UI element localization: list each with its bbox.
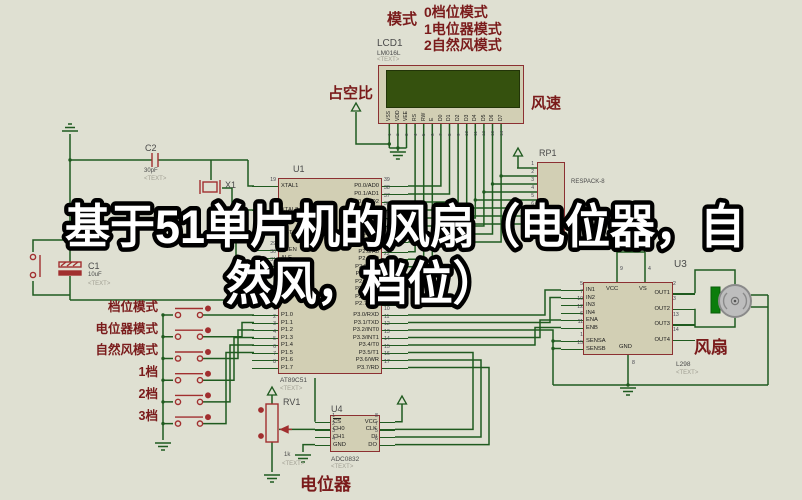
pin-number: 8	[447, 125, 452, 136]
pin: 14P3.4/T0	[278, 341, 382, 349]
pin-number: 5	[561, 281, 583, 287]
pin-number: 12	[384, 321, 406, 327]
pin-label: P0.1/AD1	[354, 191, 382, 197]
pin: 38P0.1/AD1	[278, 190, 382, 198]
lcd-part: LM016L	[377, 50, 401, 57]
pin-number: 1	[254, 306, 276, 312]
pin-label: P2.4/A12	[355, 279, 382, 285]
ground-icon	[390, 152, 406, 159]
pin-label: P3.7/RD	[357, 365, 382, 371]
button-speed2-icon[interactable]	[175, 393, 210, 404]
pin-label: P3.3/INT1	[353, 335, 382, 341]
x1-ref: X1	[225, 180, 236, 190]
pin: 27P2.6/A14	[278, 293, 382, 301]
button-label: 3档	[40, 406, 158, 428]
pin-number: 14	[673, 327, 695, 333]
pin-label: D0	[438, 100, 444, 121]
pin-label: D4	[472, 100, 478, 121]
c2-ref: C2	[145, 143, 157, 153]
pin: 36P0.3/AD3	[278, 206, 382, 214]
lcd-pin: VSS 1	[385, 100, 394, 136]
pin-label: P3.0/RXD	[353, 312, 382, 318]
capacitor-c2-icon[interactable]	[152, 153, 158, 167]
pin: 39P0.0/AD0	[278, 182, 382, 190]
pin: 16P3.6/WR	[278, 356, 382, 364]
pin-label: P3.4/T0	[359, 342, 382, 348]
u1-part: AT89C51	[280, 377, 307, 384]
pin: 22P2.1/A9	[278, 256, 382, 264]
mode-legend-list: 0档位模式1电位器模式2自然风模式	[424, 4, 502, 54]
button-label: 1档	[40, 362, 158, 384]
pin-stub	[561, 328, 583, 329]
pin-number: 8	[531, 217, 534, 223]
pin-number: 23	[384, 258, 406, 264]
pin-stub	[252, 233, 278, 234]
pin-label: OUT3	[655, 321, 673, 327]
wires-left	[33, 134, 254, 300]
u1-ref: U1	[293, 164, 305, 174]
pin-number: 33	[384, 225, 406, 231]
pin: 33P0.6/AD6	[278, 230, 382, 238]
pin-number: 3	[673, 296, 695, 302]
button-speed1-icon[interactable]	[175, 371, 210, 382]
pin-number: 29	[254, 241, 276, 247]
pin-number: 4	[413, 125, 418, 136]
lcd-pin: RW 5	[419, 100, 428, 136]
pin: 26P2.5/A13	[278, 286, 382, 294]
pin-label: RW	[421, 100, 427, 121]
pin-number: 34	[384, 217, 406, 223]
u4-placeholder: <TEXT>	[331, 464, 353, 470]
pin-label: P2.1/A9	[358, 256, 382, 262]
pin: 10P3.0/RXD	[278, 311, 382, 319]
pin-label: D2	[455, 100, 461, 121]
pin-number: 36	[384, 201, 406, 207]
pin-label: D5	[481, 100, 487, 121]
u1-p2-pins: 21P2.0/A822P2.1/A923P2.2/A1024P2.3/A1125…	[278, 248, 382, 308]
button-mode-gear-icon[interactable]	[175, 306, 210, 317]
pin: 5DI	[330, 433, 380, 441]
lcd-pin: RS 4	[411, 100, 420, 136]
ground-icon	[620, 388, 636, 395]
pin-number: 7	[561, 289, 583, 295]
pin-number: 4	[648, 266, 651, 272]
u2-gnd-label: GND	[619, 344, 632, 350]
pin-number: 6	[430, 125, 435, 136]
pin-number: 2	[531, 169, 534, 175]
rp1-ref: RP1	[539, 148, 557, 158]
pin-number: 2	[395, 125, 400, 136]
pin-number: 6	[531, 201, 534, 207]
u3-ref: U3	[674, 259, 687, 270]
wind-speed-label: 风速	[531, 92, 561, 113]
rv1-value: 1k	[284, 452, 290, 458]
lcd-pin: D2 9	[454, 100, 463, 136]
pin-number: 5	[421, 125, 426, 136]
pin-number: 3	[404, 125, 409, 136]
pin: 28P2.7/A15	[278, 301, 382, 309]
pin: 23P2.2/A10	[278, 263, 382, 271]
pin-label: P3.2/INT0	[353, 327, 382, 333]
pin-number: 12	[561, 304, 583, 310]
pin-label: P0.0/AD0	[354, 183, 382, 189]
motor-fan-icon[interactable]	[711, 285, 751, 317]
pin-stub	[673, 309, 695, 310]
pin-number: 14	[384, 336, 406, 342]
button-label: 电位器模式	[40, 319, 158, 341]
pin-label: D3	[464, 100, 470, 121]
pin-number: 5	[254, 336, 276, 342]
schematic-canvas: VSS 1 VDD 2 VEE 3 RS 4 RW 5 E 6 D0 7 D1 …	[0, 0, 802, 500]
pin-number: 8	[632, 360, 635, 366]
pin-label: VSS	[386, 100, 392, 121]
pin-label: P2.7/A15	[355, 301, 382, 307]
pin-number: 27	[384, 288, 406, 294]
pin: 35P0.4/AD4	[278, 214, 382, 222]
pin-number: 4	[254, 329, 276, 335]
pin-number: 2	[254, 314, 276, 320]
pin-stub	[252, 368, 278, 369]
u2-part: L298	[676, 361, 690, 368]
pin-label: P2.6/A14	[355, 294, 382, 300]
pin-number: 11	[384, 314, 406, 320]
u2-placeholder: <TEXT>	[676, 370, 698, 376]
pin-label: P0.5/AD5	[354, 223, 382, 229]
pin-number: 10	[464, 125, 469, 136]
pin-number: 8	[254, 359, 276, 365]
pin-stub	[673, 293, 695, 294]
pin-number: 9	[254, 224, 276, 230]
u2-out-pins: 2OUT13OUT213OUT314OUT4	[583, 286, 673, 348]
pin: 11P3.1/TXD	[278, 319, 382, 327]
lcd-pin: D6 13	[488, 100, 497, 136]
mode-legend-item: 1电位器模式	[424, 21, 502, 38]
potentiometer-rv1-icon[interactable]	[259, 404, 292, 442]
pin-number: 25	[384, 273, 406, 279]
lcd-pin: VDD 2	[394, 100, 403, 136]
u1-p3-pins: 10P3.0/RXD11P3.1/TXD12P3.2/INT013P3.3/IN…	[278, 311, 382, 371]
pin-label: OUT1	[655, 290, 673, 296]
pin: 17P3.7/RD	[278, 364, 382, 372]
pin-stub	[561, 349, 583, 350]
pin-stub	[673, 340, 695, 341]
pin-number: 1	[531, 161, 534, 167]
pin-number: 6	[375, 436, 397, 442]
lcd-pin-list: VSS 1 VDD 2 VEE 3 RS 4 RW 5 E 6 D0 7 D1 …	[385, 100, 505, 136]
pin-number: 2	[673, 281, 695, 287]
ground-icon	[62, 124, 78, 131]
pin-number: 8	[375, 413, 397, 419]
pin: 13P3.3/INT1	[278, 334, 382, 342]
pin-number: 35	[384, 209, 406, 215]
pin-stub	[315, 445, 330, 446]
mode-legend-item: 2自然风模式	[424, 37, 502, 54]
pin: 7CLK	[330, 426, 380, 434]
pin-label: P0.4/AD4	[354, 215, 382, 221]
capacitor-c1-icon[interactable]	[59, 262, 81, 275]
mode-legend-item: 0档位模式	[424, 4, 502, 21]
pin-number: 31	[254, 257, 276, 263]
pin-number: 6	[254, 344, 276, 350]
pin-number: 16	[384, 351, 406, 357]
pin-number: 10	[384, 306, 406, 312]
pin-number: 21	[384, 243, 406, 249]
pin: 6DO	[330, 441, 380, 449]
pin-number: 3	[254, 321, 276, 327]
pin-number: 5	[531, 193, 534, 199]
pin-label: D1	[446, 100, 452, 121]
fan-label: 风扇	[694, 333, 728, 358]
pin-label: OUT2	[655, 306, 673, 312]
u4-part: ADC0832	[331, 456, 359, 463]
power-arrow-icon	[514, 148, 523, 156]
pin-number: 4	[531, 185, 534, 191]
pin-number: 12	[481, 125, 486, 136]
lcd-placeholder: <TEXT>	[377, 57, 399, 63]
mode-legend-heading: 模式	[387, 8, 417, 29]
pin-number: 17	[384, 359, 406, 365]
lcd-ref: LCD1	[377, 38, 403, 49]
pin-label: P3.6/WR	[356, 357, 382, 363]
c2-placeholder: <TEXT>	[144, 176, 166, 182]
c1-ref: C1	[88, 261, 100, 271]
pin-label: P2.0/A8	[358, 249, 382, 255]
wires-buttons	[163, 315, 254, 440]
button-label: 自然风模式	[40, 340, 158, 362]
pin-label: P2.3/A11	[356, 271, 382, 277]
u2-vcc-label: VCC	[606, 286, 618, 292]
pin-label: VEE	[403, 100, 409, 121]
power-arrow-icon	[352, 103, 361, 111]
pin-label: P3.5/T1	[359, 350, 382, 356]
button-label-list: 档位模式电位器模式自然风模式1档2档3档	[40, 297, 158, 427]
pin: 13OUT3	[583, 317, 673, 333]
pin-number: 22	[384, 251, 406, 257]
pin: 2OUT1	[583, 286, 673, 302]
c2-value: 30pF	[144, 168, 158, 174]
button-mode-pot-icon[interactable]	[175, 328, 210, 339]
pin-label: D7	[498, 100, 504, 121]
pin: 8	[518, 219, 534, 227]
pin-label: VDD	[395, 100, 401, 121]
pin-stub	[252, 266, 278, 267]
pin: 24P2.3/A11	[278, 271, 382, 279]
pin-number: 11	[473, 125, 478, 136]
u4-ref: U4	[331, 404, 343, 414]
pin-number: 7	[531, 209, 534, 215]
lcd-pin: D1 8	[445, 100, 454, 136]
rv1-placeholder: <TEXT>	[282, 461, 304, 467]
pin-stub	[382, 368, 408, 369]
pin: 32P0.7/AD7	[278, 238, 382, 246]
pin-number: 10	[561, 296, 583, 302]
c1-value: 10uF	[88, 272, 102, 278]
pin-stub	[252, 186, 278, 187]
ground-icon	[155, 443, 171, 450]
pin: 3OUT2	[583, 301, 673, 317]
pin-number: 1	[387, 125, 392, 136]
pin: 12P3.2/INT0	[278, 326, 382, 334]
button-label: 档位模式	[40, 297, 158, 319]
pin: 15P3.5/T1	[278, 349, 382, 357]
button-mode-natural-icon[interactable]	[175, 350, 210, 361]
lcd-pin: VEE 3	[402, 100, 411, 136]
lcd-pin: D0 7	[437, 100, 446, 136]
pin-number: 3	[531, 177, 534, 183]
potentiometer-label: 电位器	[300, 470, 351, 495]
u1-p0-pins: 39P0.0/AD038P0.1/AD137P0.2/AD236P0.3/AD3…	[278, 182, 382, 246]
pin-number: 39	[384, 177, 406, 183]
pin-number: 19	[254, 177, 276, 183]
pin-label: P0.2/AD2	[354, 199, 382, 205]
pin-number: 7	[254, 351, 276, 357]
lcd-pin: D4 11	[471, 100, 480, 136]
rv1-ref: RV1	[283, 397, 300, 407]
pin-number: 7	[438, 125, 443, 136]
pin-label: P0.7/AD7	[354, 239, 382, 245]
pin-number: 13	[384, 329, 406, 335]
lcd-pin: E 6	[428, 100, 437, 136]
u2-vs-label: VS	[639, 286, 647, 292]
ground-icon	[264, 475, 280, 482]
u1-placeholder: <TEXT>	[280, 386, 302, 392]
button-label: 2档	[40, 384, 158, 406]
crystal-x1-icon[interactable]	[200, 180, 220, 194]
pin-label: D6	[489, 100, 495, 121]
pin-number: 15	[561, 340, 583, 346]
pin: 25P2.4/A12	[278, 278, 382, 286]
pin-number: 18	[254, 201, 276, 207]
pin-number: 9	[620, 266, 623, 272]
pin-number: 24	[384, 266, 406, 272]
pin-label: RS	[412, 100, 418, 121]
pin-number: 38	[384, 185, 406, 191]
pin-number: 13	[673, 312, 695, 318]
power-arrow-icon	[268, 387, 277, 395]
lcd-pin: D3 10	[462, 100, 471, 136]
lcd-pin: D5 12	[480, 100, 489, 136]
pin-label: E	[429, 100, 435, 121]
pin: 21P2.0/A8	[278, 248, 382, 256]
pin-number: 28	[384, 296, 406, 302]
pin-stub	[252, 210, 278, 211]
pin-number: 11	[561, 319, 583, 325]
button-speed3-icon[interactable]	[175, 415, 210, 426]
pin-number: 5	[375, 428, 397, 434]
lcd-pin: D7 14	[497, 100, 506, 136]
pin-number: 6	[561, 311, 583, 317]
pin-number: 30	[254, 249, 276, 255]
rp1-pin-list: 12345678	[518, 163, 534, 227]
pin-number: 1	[561, 332, 583, 338]
pin-label: P2.2/A10	[355, 264, 382, 270]
c1-placeholder: <TEXT>	[88, 281, 110, 287]
pin-label: P2.5/A13	[355, 286, 382, 292]
u4-right-pins: 8VCC7CLK5DI6DO	[330, 418, 380, 448]
pin-label: P3.1/TXD	[354, 320, 382, 326]
pin-number: 9	[456, 125, 461, 136]
pin-number: 37	[384, 193, 406, 199]
pin-label: DO	[368, 442, 380, 448]
pin-number: 13	[490, 125, 495, 136]
pin: 8VCC	[330, 418, 380, 426]
power-arrow-icon	[398, 396, 407, 404]
pin-number: 32	[384, 233, 406, 239]
pin-label: P0.3/AD3	[354, 207, 382, 213]
duty-cycle-label: 占空比	[328, 82, 373, 103]
rp1-part: RESPACK-8	[571, 179, 605, 185]
pin-stub	[380, 445, 395, 446]
pin-number: 26	[384, 281, 406, 287]
pin: 37P0.2/AD2	[278, 198, 382, 206]
pin: 34P0.5/AD5	[278, 222, 382, 230]
pin-number: 15	[384, 344, 406, 350]
pin-label: P0.6/AD6	[354, 231, 382, 237]
pin-stub	[673, 324, 695, 325]
pin-number: 14	[499, 125, 504, 136]
reset-button-icon[interactable]	[30, 254, 40, 277]
pin-number: 7	[375, 421, 397, 427]
pin-label: OUT4	[655, 337, 673, 343]
rp1-body[interactable]	[537, 162, 565, 236]
